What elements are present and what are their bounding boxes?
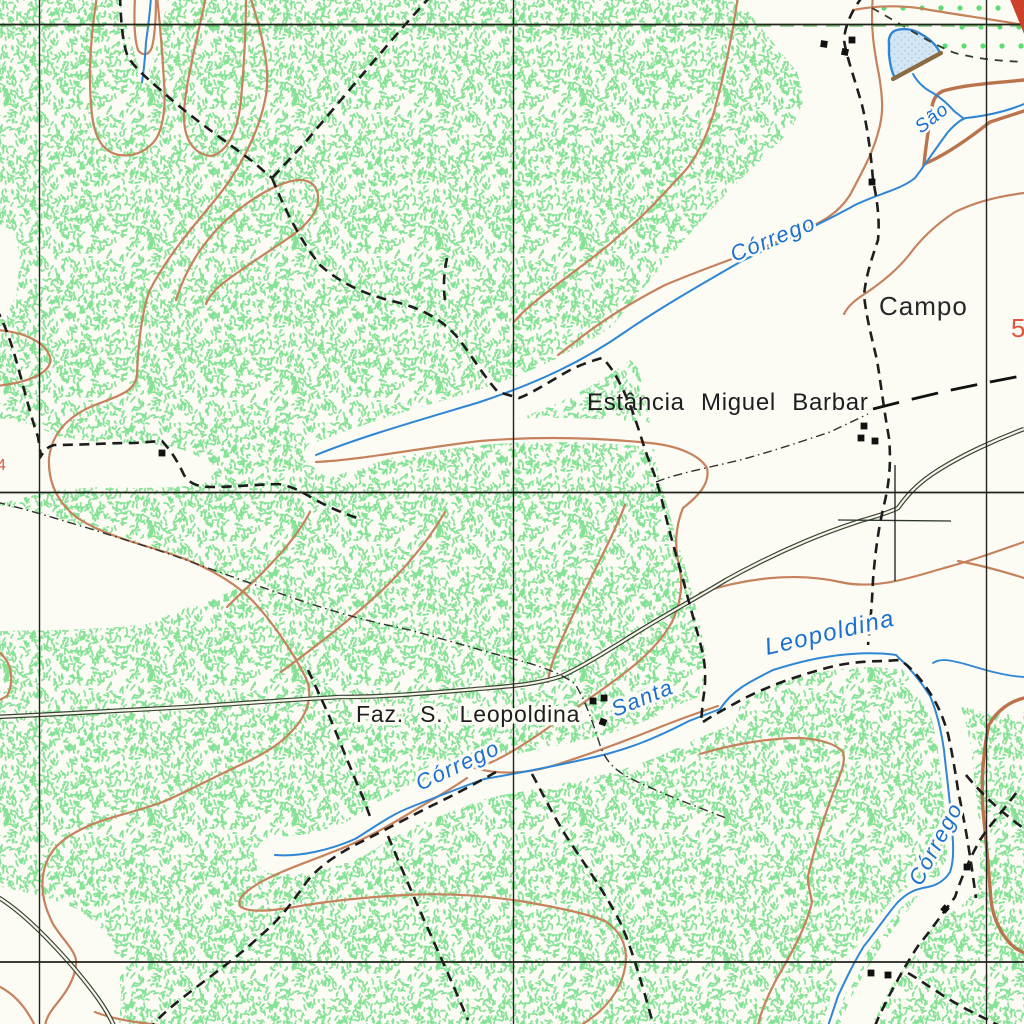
svg-text:Estância Miguel Barbar: Estância Miguel Barbar bbox=[587, 389, 869, 416]
svg-text:4: 4 bbox=[0, 457, 6, 474]
svg-text:5: 5 bbox=[1011, 313, 1024, 343]
svg-text:Campo: Campo bbox=[879, 291, 968, 321]
svg-text:Faz. S. Leopoldina: Faz. S. Leopoldina bbox=[356, 701, 580, 727]
